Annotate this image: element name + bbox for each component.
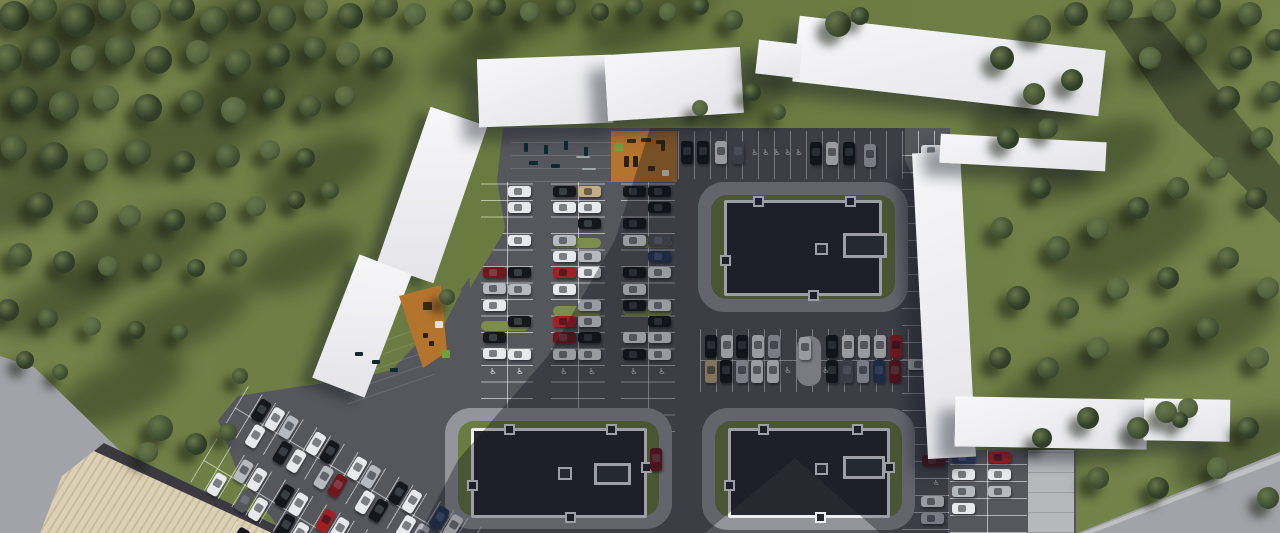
car (578, 186, 601, 197)
tree (336, 42, 360, 66)
tree (1247, 347, 1269, 369)
car-glass (584, 269, 592, 276)
tree (851, 7, 869, 25)
car-glass (994, 471, 1002, 478)
tree (1257, 487, 1279, 509)
car (483, 332, 506, 343)
tree (1046, 236, 1070, 260)
tree (1061, 69, 1083, 91)
car-glass (212, 478, 223, 489)
car-glass (559, 188, 567, 195)
tree (439, 289, 455, 305)
car (578, 202, 601, 213)
tree (321, 181, 339, 199)
tree (16, 351, 34, 369)
tree (1006, 286, 1030, 310)
car (988, 469, 1011, 480)
court-item (551, 164, 560, 168)
tree (1265, 29, 1280, 51)
car-glass (360, 495, 371, 506)
car (952, 469, 975, 480)
car-glass (514, 351, 522, 358)
tree (268, 4, 296, 32)
court-item (584, 147, 588, 156)
tree (1029, 177, 1051, 199)
tree (105, 35, 135, 65)
tree (1, 135, 27, 161)
tree (1147, 327, 1169, 349)
tree (40, 142, 68, 170)
tree (1139, 47, 1161, 69)
tree (659, 3, 677, 21)
court-item (544, 145, 548, 154)
car (578, 218, 601, 229)
handicap-marking: ♿ (488, 367, 498, 377)
tree (260, 140, 280, 160)
car-glass (250, 429, 261, 440)
car-glass (325, 445, 336, 456)
car-glass (292, 454, 303, 465)
tree (10, 86, 38, 114)
tree (83, 317, 101, 335)
court-item (423, 302, 432, 310)
tree (991, 217, 1013, 239)
tree (1207, 457, 1229, 479)
tree (1077, 407, 1099, 429)
car-glass (559, 237, 567, 244)
car-glass (958, 505, 966, 512)
car (553, 202, 576, 213)
tree (27, 192, 53, 218)
car-glass (994, 454, 1002, 461)
tree (1238, 2, 1262, 26)
tree (1157, 267, 1179, 289)
tree (770, 104, 786, 120)
car-glass (559, 318, 567, 325)
tree (1064, 2, 1088, 26)
car (553, 267, 576, 278)
tree (1207, 157, 1229, 179)
tree (219, 423, 237, 441)
car (508, 316, 531, 327)
car (578, 251, 601, 262)
car-glass (958, 471, 966, 478)
car (508, 235, 531, 246)
car-glass (311, 437, 322, 448)
court-item (423, 333, 428, 338)
car (508, 267, 531, 278)
tree (1261, 81, 1280, 103)
tree (451, 0, 473, 21)
car (553, 186, 576, 197)
car-glass (294, 527, 305, 533)
handicap-marking: ♿ (515, 367, 525, 377)
tree (692, 100, 708, 116)
tree (1025, 15, 1051, 41)
tree (1257, 277, 1279, 299)
car-glass (584, 220, 592, 227)
car-glass (253, 502, 264, 513)
tree (8, 243, 32, 267)
car-glass (584, 253, 592, 260)
tree (997, 127, 1019, 149)
tree (337, 3, 363, 29)
tree (371, 47, 393, 69)
car-glass (281, 519, 292, 530)
tree (180, 90, 204, 114)
court-item (435, 321, 443, 328)
tree (287, 191, 305, 209)
tree (134, 94, 162, 122)
tree (591, 3, 609, 21)
tree (1087, 337, 1109, 359)
car (508, 186, 531, 197)
tree (1251, 127, 1273, 149)
car-glass (352, 462, 363, 473)
tree (221, 97, 247, 123)
tree (1216, 86, 1240, 110)
court-item (624, 156, 629, 167)
car (508, 349, 531, 360)
stall-center-line (507, 182, 508, 432)
tree (825, 11, 851, 37)
court-item (615, 143, 623, 151)
car (483, 283, 506, 294)
court-item (372, 360, 380, 364)
tree (53, 251, 75, 273)
car-glass (958, 488, 966, 495)
court-item (442, 350, 450, 358)
court-item (390, 368, 398, 372)
court-item (627, 139, 636, 143)
car-glass (559, 253, 567, 260)
car (988, 452, 1011, 463)
tree (216, 144, 240, 168)
court-item (564, 141, 568, 150)
tree (144, 46, 172, 74)
tree (232, 368, 248, 384)
car-glass (559, 286, 567, 293)
tree (74, 200, 98, 224)
tree (1147, 477, 1169, 499)
car (952, 486, 975, 497)
tree (1245, 187, 1267, 209)
tree (304, 37, 326, 59)
tree (1127, 417, 1149, 439)
tree (185, 433, 207, 455)
tree (147, 415, 173, 441)
tree (125, 139, 151, 165)
car (553, 251, 576, 262)
tree (229, 249, 247, 267)
tree (71, 45, 97, 71)
car (952, 503, 975, 514)
tree (1023, 83, 1045, 105)
car (483, 348, 506, 359)
white-roof-building (477, 55, 613, 128)
car (483, 300, 506, 311)
tree (1237, 417, 1259, 439)
car-glass (489, 269, 497, 276)
car-glass (374, 504, 385, 515)
tree (1127, 197, 1149, 219)
car-glass (514, 286, 522, 293)
tree (1037, 357, 1059, 379)
car-glass (407, 495, 418, 506)
car (508, 202, 531, 213)
car-glass (994, 488, 1002, 495)
tree (200, 6, 228, 34)
car-glass (294, 497, 305, 508)
tree (0, 1, 29, 31)
tree (1087, 217, 1109, 239)
car-glass (366, 470, 377, 481)
car-glass (333, 479, 344, 490)
white-roof-building (604, 47, 744, 121)
tree (1057, 297, 1079, 319)
car (553, 235, 576, 246)
court-item (529, 161, 538, 165)
car-glass (559, 204, 567, 211)
court-item (524, 143, 528, 152)
tree (1228, 46, 1252, 70)
tree (1167, 177, 1189, 199)
tree (206, 202, 226, 222)
tree (93, 85, 119, 111)
tree (1107, 277, 1129, 299)
car-glass (489, 302, 497, 309)
car-glass (514, 204, 522, 211)
car (553, 284, 576, 295)
car (483, 267, 506, 278)
court-item (576, 156, 590, 158)
tree (172, 324, 188, 340)
court-item (429, 341, 434, 346)
tree (1038, 118, 1058, 138)
tree (38, 308, 58, 328)
tree (263, 87, 285, 109)
car-glass (584, 188, 592, 195)
tree (266, 43, 290, 67)
tree (98, 256, 118, 276)
tree (52, 364, 68, 380)
tree (1087, 467, 1109, 489)
tree (723, 10, 743, 30)
white-roof-building (755, 40, 803, 79)
tree (173, 151, 195, 173)
tree (989, 347, 1011, 369)
tree (1172, 412, 1188, 428)
car (508, 284, 531, 295)
tree (61, 3, 95, 37)
tree (404, 3, 426, 25)
car-glass (240, 494, 251, 505)
car-glass (280, 489, 291, 500)
tree (990, 46, 1014, 70)
car-glass (489, 350, 497, 357)
car-glass (514, 237, 522, 244)
car-glass (319, 471, 330, 482)
car-glass (239, 464, 250, 475)
tree (119, 205, 141, 227)
tree (28, 36, 60, 68)
car-glass (394, 486, 405, 497)
car-glass (335, 522, 346, 533)
tree (225, 49, 251, 75)
car-glass (489, 334, 497, 341)
tree (1197, 317, 1219, 339)
car-glass (489, 285, 497, 292)
aerial-site-render: ♿♿♿♿♿♿♿♿♿♿♿♿♿♿♿♿♿♿ (0, 0, 1280, 533)
tree (1185, 33, 1207, 55)
tree (520, 2, 540, 22)
car-glass (584, 204, 592, 211)
tree (49, 91, 79, 121)
tree (163, 209, 185, 231)
tree (246, 196, 266, 216)
car-glass (270, 412, 281, 423)
tree (1032, 428, 1052, 448)
car-glass (256, 404, 267, 415)
car-glass (284, 420, 295, 431)
tree (142, 252, 162, 272)
tree (1217, 247, 1239, 269)
car-glass (278, 446, 289, 457)
tree (335, 86, 355, 106)
tree (187, 259, 205, 277)
court-item (355, 352, 363, 356)
tree (299, 95, 321, 117)
roof-notch (815, 512, 826, 523)
tree (295, 148, 315, 168)
car-glass (514, 188, 522, 195)
tree (138, 442, 158, 462)
court-item (633, 156, 638, 167)
court-item (582, 168, 596, 170)
tree (186, 40, 210, 64)
car (988, 486, 1011, 497)
tree (743, 83, 761, 101)
car-glass (559, 269, 567, 276)
tree (131, 1, 161, 31)
walkway (1028, 450, 1074, 533)
sports-court (511, 133, 612, 182)
tree (84, 148, 108, 172)
car-glass (401, 520, 412, 531)
car-glass (514, 318, 522, 325)
car-glass (252, 473, 263, 484)
tree (127, 321, 145, 339)
car-glass (321, 514, 332, 525)
car-glass (514, 269, 522, 276)
